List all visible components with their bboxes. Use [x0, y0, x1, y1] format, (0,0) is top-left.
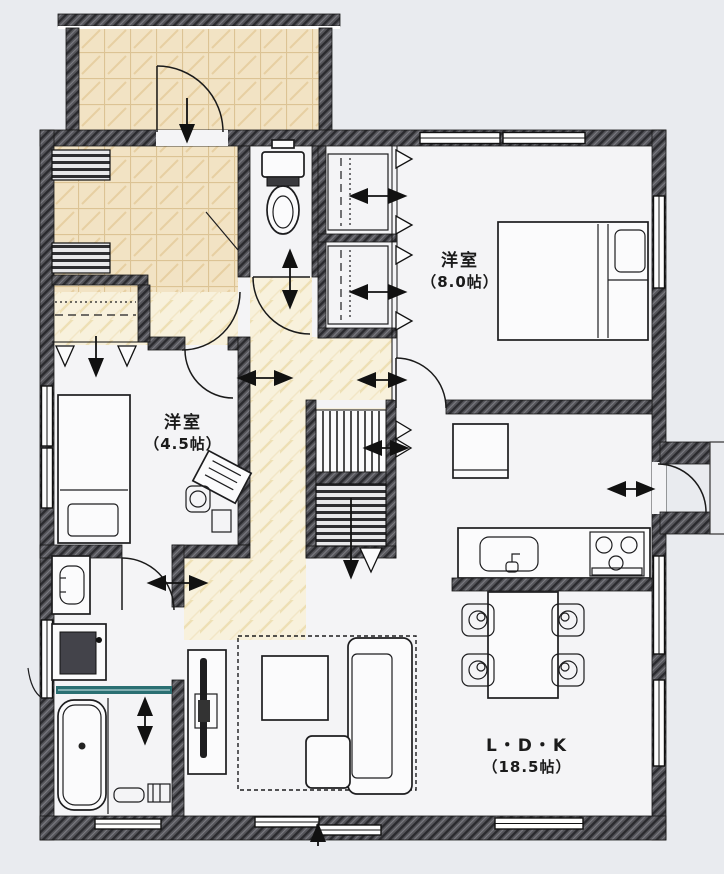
porch-lintel-gap [58, 26, 340, 29]
room-size-label: （4.5帖） [144, 435, 222, 453]
corridor-floor [184, 558, 306, 640]
tv-board-icon [188, 650, 226, 774]
wall-closet-bottom [318, 328, 396, 338]
wall-room45-east [238, 337, 250, 545]
kitchen [452, 528, 652, 591]
dining-table-icon [488, 592, 558, 698]
porch-wall-left [66, 28, 79, 130]
wall-entry-closet-top [52, 275, 148, 285]
room-size-label: （8.0帖） [421, 273, 499, 291]
bathtub-icon [58, 700, 106, 810]
wall-washroom-east [172, 545, 184, 607]
room-size-label: （18.5帖） [482, 758, 571, 776]
wall-stairs-east [386, 400, 396, 558]
floor-plan-svg: 洋室 （8.0帖） [0, 0, 724, 874]
wall-closet-divider [318, 234, 396, 242]
room-label: 洋室 [441, 250, 479, 271]
wall-entry-toilet [238, 146, 250, 277]
room-label: L・D・K [486, 736, 568, 756]
wall-room45-north-a [148, 337, 185, 350]
vanity-sink-icon [52, 556, 90, 614]
hall-floor [246, 337, 392, 400]
corridor-floor [250, 400, 306, 558]
wall-ldk-north [446, 400, 652, 414]
porch-tile-floor [79, 28, 319, 130]
hall-floor [250, 277, 312, 337]
double-bed-icon [498, 222, 648, 340]
wall-bathroom-east [172, 680, 184, 816]
cistern-icon [272, 140, 294, 148]
porch-lintel [58, 14, 340, 26]
wall-room45-north-b [228, 337, 238, 350]
rear-door-gap [652, 462, 666, 514]
floor-plan-page: 洋室 （8.0帖） [0, 0, 724, 874]
wall-stairs-west [306, 400, 316, 558]
exterior-step-edge [710, 442, 724, 534]
washing-machine-icon [52, 624, 106, 680]
exterior-step [660, 512, 710, 534]
door-leaf-open [660, 442, 710, 464]
room-label: 洋室 [164, 412, 202, 433]
wall-entry-closet-right [138, 285, 150, 342]
porch-wall-right [319, 28, 332, 130]
shoe-cabinet-icon [52, 150, 110, 180]
counter-front-wall [452, 578, 652, 591]
single-bed-icon [58, 395, 130, 543]
coffee-table-icon [262, 656, 328, 720]
front-door-gap [156, 130, 228, 146]
shoe-cabinet-icon [52, 243, 110, 273]
